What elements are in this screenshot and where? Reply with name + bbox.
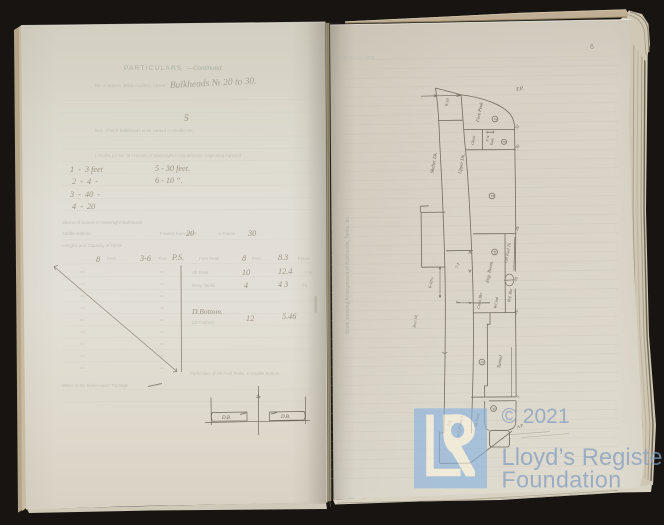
- svg-text:5: 5: [184, 114, 189, 124]
- svg-text:© 2021: © 2021: [502, 405, 570, 428]
- svg-text:12.4: 12.4: [278, 267, 292, 276]
- svg-text:6: 6: [590, 44, 594, 51]
- svg-text:Lengths (or No. of Frames) of: Lengths (or No. of Frames) of Watertight…: [95, 153, 242, 158]
- svg-text:5.46: 5.46: [282, 312, 297, 321]
- svg-text:2 - 4 -: 2 - 4 -: [72, 177, 98, 186]
- svg-text:No. of Boilers below Auxiliary: No. of Boilers below Auxiliary Space: [95, 83, 166, 88]
- svg-text:8: 8: [96, 255, 100, 264]
- svg-text:D.B.: D.B.: [221, 416, 231, 421]
- svg-text:3-6: 3-6: [139, 254, 152, 263]
- svg-text:3 - 40 -: 3 - 40 -: [69, 190, 100, 199]
- svg-text:Nos. of W.T. Bulkheads to be c: Nos. of W.T. Bulkheads to be carried to …: [95, 128, 194, 133]
- svg-text:Fore Peak: Fore Peak: [199, 256, 220, 261]
- svg-text:Frame: Frame: [298, 256, 311, 261]
- svg-text:PARTICULARS: PARTICULARS: [337, 55, 375, 61]
- svg-text:30: 30: [247, 229, 256, 238]
- svg-text:Aft Peak: Aft Peak: [192, 270, 209, 275]
- svg-text:—Continued.: —Continued.: [186, 65, 223, 72]
- svg-text:4: 4: [244, 281, 248, 290]
- svg-text:Particulars of Oil Fuel Tanks: Particulars of Oil Fuel Tanks in Double …: [190, 371, 281, 376]
- svg-text:Tons: Tons: [158, 256, 168, 261]
- svg-text:F.W.: F.W.: [305, 270, 314, 275]
- svg-text:6 - 10 “.: 6 - 10 “.: [155, 176, 183, 185]
- svg-text:12: 12: [246, 314, 254, 323]
- svg-text:Lengths and Capacity of Tanks: Lengths and Capacity of Tanks: [62, 243, 123, 248]
- svg-text:·: ·: [252, 270, 253, 275]
- svg-text:20: 20: [186, 229, 194, 238]
- svg-text:1 - 3 feet: 1 - 3 feet: [70, 165, 104, 174]
- svg-text:·: ·: [252, 283, 253, 288]
- svg-text:Feet: Feet: [107, 256, 117, 261]
- svg-text:4 3: 4 3: [278, 280, 288, 289]
- svg-text:Means of access to Watertight: Means of access to Watertight Bulkheads: [62, 220, 143, 225]
- svg-text:PARTICULARS: PARTICULARS: [124, 65, 182, 72]
- svg-text:(of Frames): (of Frames): [192, 320, 215, 325]
- svg-text:Deep Tanks: Deep Tanks: [192, 283, 216, 288]
- svg-text:D.B.: D.B.: [280, 415, 290, 420]
- svg-text:D.Bottom.: D.Bottom.: [191, 307, 223, 316]
- svg-text:· Ta: · Ta: [300, 283, 308, 288]
- svg-text:8: 8: [242, 254, 246, 263]
- svg-text:4 - 20: 4 - 20: [72, 202, 95, 211]
- svg-text:Water in the Boiler under Tonn: Water in the Boiler under Tonnage: [62, 383, 129, 388]
- svg-text:8.3: 8.3: [278, 253, 288, 262]
- svg-text:Foundation: Foundation: [502, 467, 622, 493]
- svg-text:10: 10: [242, 268, 250, 277]
- svg-text:in Frame: in Frame: [218, 231, 236, 236]
- svg-text:P.S.: P.S.: [171, 253, 184, 262]
- svg-text:Feet: Feet: [252, 256, 262, 261]
- svg-text:5 - 30 feet.: 5 - 30 feet.: [155, 164, 190, 173]
- svg-text:Scale showing Arrangement of B: Scale showing Arrangement of Bulkheads, …: [345, 216, 351, 334]
- svg-text:Saddle Ballast: Saddle Ballast: [62, 231, 91, 236]
